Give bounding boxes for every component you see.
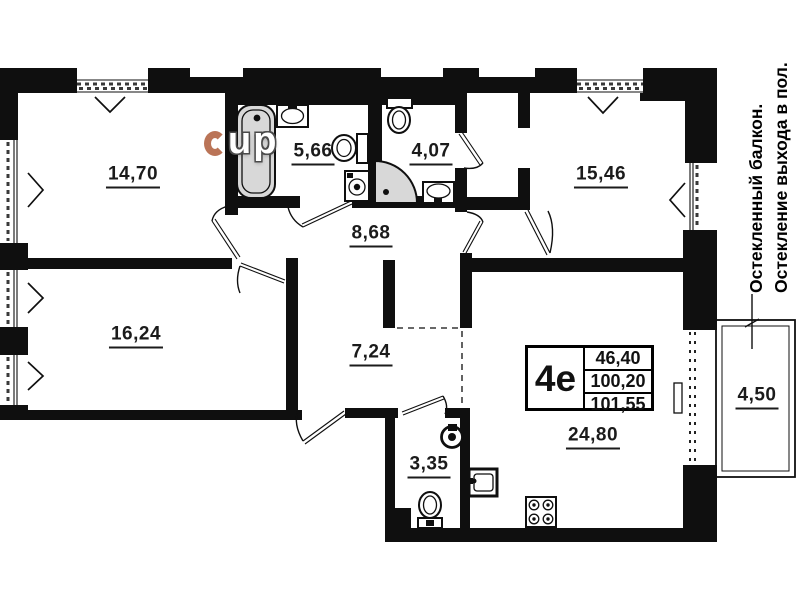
door-arc	[288, 207, 303, 227]
floor-plan: 14,70 5,66 4,07 15,46 8,68 16,24 7,24 3,…	[0, 0, 799, 600]
open-boundaries	[397, 328, 462, 406]
wall-segment	[643, 68, 717, 93]
room-area-label-corridor: 7,24	[350, 342, 393, 367]
toilet-tank	[357, 134, 368, 163]
window-chevron	[28, 173, 43, 207]
door-leaf	[302, 201, 351, 224]
room-area-label-bedroom-bottom-left: 16,24	[109, 324, 163, 349]
bathroom-sink-icon	[423, 182, 454, 203]
wall-segment	[460, 253, 472, 328]
window-chevron	[670, 183, 685, 217]
door-leaf	[403, 399, 444, 415]
sink-tap-base	[472, 479, 477, 484]
door-leaf	[528, 210, 550, 253]
wall-niche	[190, 68, 243, 77]
door-leaf	[463, 221, 480, 252]
window-chevron	[28, 283, 43, 313]
door-leaf	[303, 204, 352, 227]
washing-machine-panel	[347, 173, 353, 178]
watermark-accent-glyph	[204, 131, 226, 156]
room-area-label-toilet-room: 4,07	[410, 141, 453, 166]
room-area-label-kitchen-living: 24,80	[566, 425, 620, 450]
stove-burner-center	[546, 503, 549, 506]
stove-burner-center	[546, 517, 549, 520]
toilet-button	[426, 520, 434, 526]
room-area-label-hallway: 8,68	[350, 223, 393, 248]
door-leaf	[462, 132, 483, 163]
unit-total-area: 101,55	[585, 392, 651, 415]
wall-segment	[385, 508, 411, 530]
wall-segment	[467, 258, 687, 272]
unit-living-area: 46,40	[585, 348, 651, 369]
room-area-label-bedroom-top-right: 15,46	[574, 164, 628, 189]
window-chevron	[28, 362, 43, 390]
wall-segment	[518, 168, 530, 210]
washing-machine-hub	[354, 184, 360, 190]
door-leaf	[525, 212, 547, 255]
shower-drain	[383, 189, 389, 195]
door-leaf	[402, 396, 443, 412]
door-leaf	[240, 266, 284, 283]
room-area-label-bedroom-top-left: 14,70	[106, 164, 160, 189]
sink-drain	[448, 433, 456, 441]
unit-areas-table: 46,40 100,20 101,55	[585, 348, 651, 408]
washing-machine-icon	[345, 171, 369, 201]
toilet-icon	[418, 492, 442, 528]
toilet-icon	[387, 98, 412, 133]
shower-tray	[375, 161, 417, 203]
wc-sink-icon	[442, 424, 463, 448]
wall-segment	[383, 260, 395, 328]
wall-segment	[286, 258, 298, 410]
sink-tap	[288, 105, 297, 109]
window-chevron	[95, 97, 125, 112]
stove-burner-center	[532, 517, 535, 520]
wall-segment	[0, 327, 28, 355]
door-leaf	[212, 221, 237, 259]
door-leaf	[459, 134, 480, 165]
wall-segment	[14, 258, 232, 269]
toilet-icon	[332, 134, 368, 163]
stove-burner-center	[532, 503, 535, 506]
wall-segment	[0, 410, 302, 420]
wall-segment	[455, 93, 467, 133]
door-leaf	[303, 411, 344, 441]
bathroom-sink-icon	[277, 105, 308, 127]
balcony-note-leader	[745, 294, 759, 349]
wall-segment	[683, 230, 717, 330]
unit-info-box: 4е 46,40 100,20 101,55	[525, 345, 654, 411]
watermark-text: up	[228, 122, 278, 160]
balcony-note-line1: Остекленный балкон.	[746, 104, 767, 293]
room-area-label-wc-small: 3,35	[408, 454, 451, 479]
unit-type-label: 4е	[528, 348, 585, 408]
wall-niche	[479, 68, 535, 77]
wall-segment	[683, 465, 717, 531]
room-area-label-balcony: 4,50	[736, 385, 779, 410]
door-leaf	[215, 219, 240, 257]
stove-icon	[526, 497, 556, 527]
door-arc	[238, 266, 241, 293]
door-arc	[464, 163, 483, 168]
wall-segment	[518, 93, 530, 128]
door-arc	[548, 211, 553, 253]
radiator-icon	[674, 383, 682, 413]
window-chevron	[588, 97, 618, 113]
door-arc	[467, 212, 483, 222]
door-leaf	[466, 222, 483, 253]
wall-segment	[385, 528, 717, 542]
wall-niche	[381, 68, 443, 77]
wall-segment	[225, 93, 467, 105]
floor-plan-drawing	[0, 0, 799, 600]
kitchen-sink-icon	[464, 469, 497, 496]
door-leaf	[241, 263, 285, 280]
shower-icon	[375, 161, 417, 203]
unit-area-without-balcony: 100,20	[585, 369, 651, 392]
wall-segment	[0, 93, 18, 140]
sink-tap	[448, 424, 457, 431]
wall-segment	[685, 93, 717, 163]
door-leaf	[305, 414, 346, 444]
sink-tap	[434, 198, 442, 203]
room-area-label-bathroom: 5,66	[292, 141, 335, 166]
balcony-note-line2: Остекление выхода в пол.	[771, 62, 792, 293]
wall-segment	[0, 68, 77, 93]
